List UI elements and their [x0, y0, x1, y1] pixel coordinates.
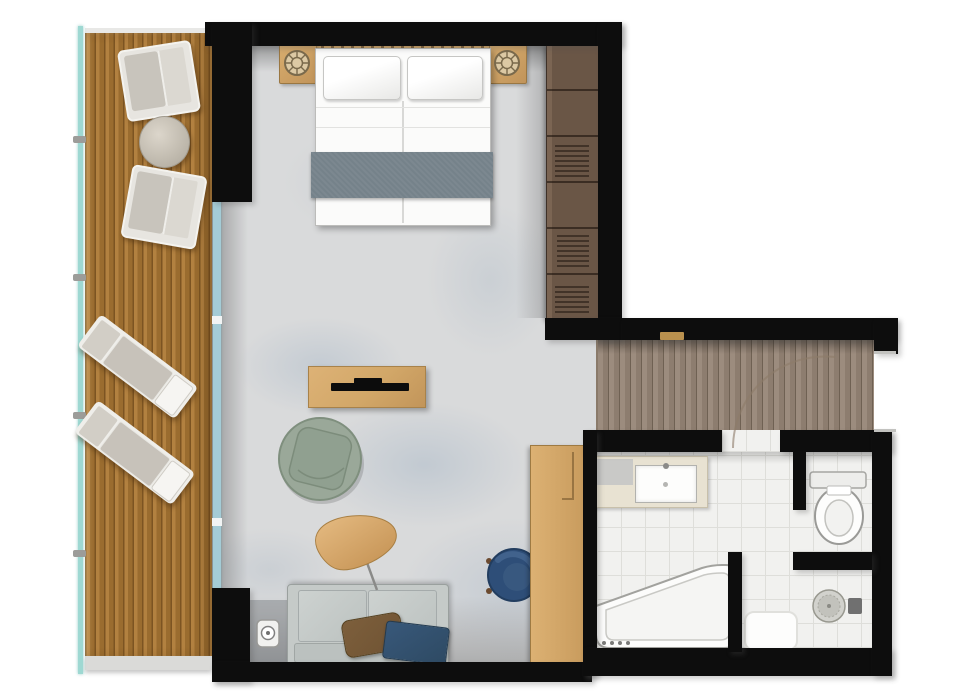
- wall-east-bedroom: [598, 22, 622, 340]
- side-lamp: [257, 620, 279, 647]
- round-armchair: [279, 418, 364, 504]
- wall-north: [205, 22, 622, 46]
- entry-door-frame: [874, 351, 896, 354]
- wall-wc-west: [793, 452, 806, 510]
- wall-hall-south-left: [583, 430, 722, 452]
- bedside-lamp: [285, 51, 309, 75]
- entry-door-frame: [874, 429, 896, 432]
- wall-bath-west: [583, 430, 597, 676]
- shower-control: [848, 598, 862, 614]
- wall-west-upper: [212, 22, 252, 202]
- bath-mat: [745, 612, 797, 650]
- bathtub: [596, 565, 738, 648]
- desk: [530, 445, 584, 665]
- desk-seam: [562, 498, 574, 500]
- desk-seam: [572, 452, 574, 498]
- wall-entry-stub: [874, 318, 898, 354]
- floor-lamp: [316, 516, 397, 590]
- wall-wc-south: [793, 552, 872, 570]
- toilet: [810, 472, 866, 544]
- door-fitting-brass: [660, 332, 684, 340]
- wall-under-wardrobe: [545, 318, 622, 340]
- plan-details-layer: [0, 0, 970, 700]
- wall-bath-south: [583, 648, 892, 676]
- shower-drain: [813, 590, 845, 622]
- wall-tub-divider: [728, 552, 742, 652]
- wall-bath-east: [872, 430, 892, 676]
- wall-south-living: [212, 662, 592, 682]
- floor-plan: [0, 0, 970, 700]
- bedside-lamp: [495, 51, 519, 75]
